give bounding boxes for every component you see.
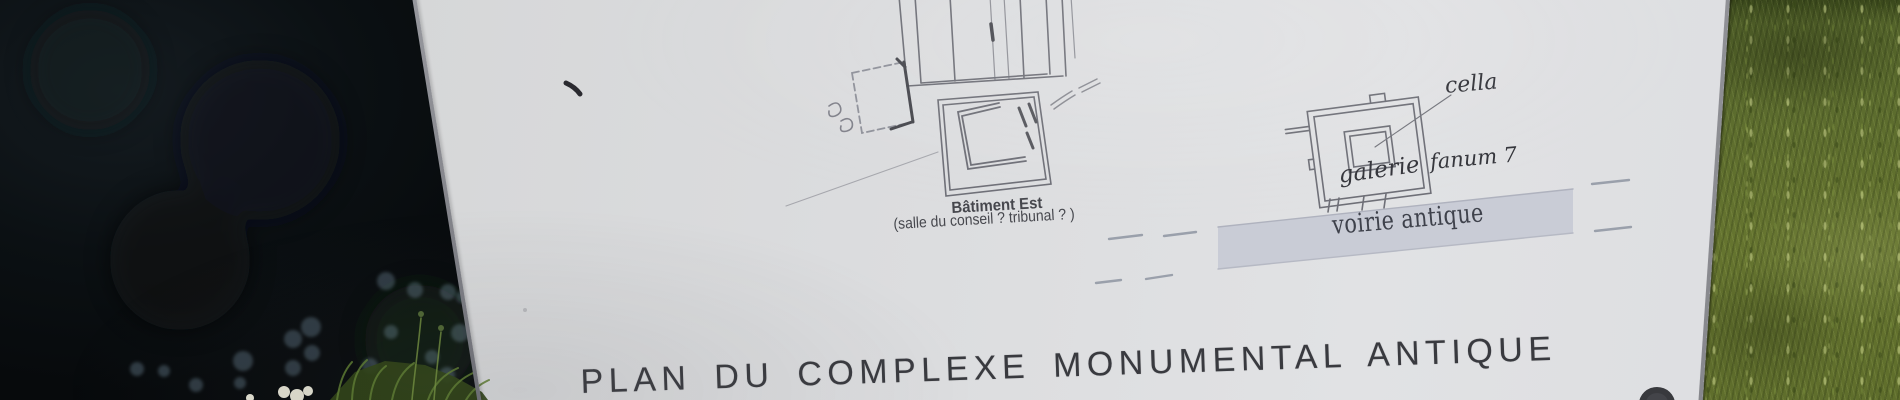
white-flowers bbox=[246, 386, 313, 400]
site-plan-drawing bbox=[0, 0, 1900, 400]
cella-label: cella bbox=[1444, 69, 1499, 98]
wall-stub-lines bbox=[1051, 79, 1100, 109]
batiment-est-lower-room-plan bbox=[938, 92, 1051, 196]
photo-scene: PLAN DU COMPLEXE MONUMENTAL ANTIQUE Bâti… bbox=[0, 0, 1900, 400]
fanum-plan bbox=[1282, 89, 1431, 211]
cella-leader-line bbox=[1375, 95, 1451, 147]
annex-plan bbox=[829, 59, 913, 133]
batiment-est-upper-hall-plan bbox=[899, 0, 1075, 86]
grass-seed-head bbox=[418, 311, 424, 317]
panel-speck bbox=[523, 308, 527, 312]
shadow-mottling bbox=[30, 10, 475, 395]
faint-alignment-line bbox=[786, 152, 938, 206]
bolt-head bbox=[1639, 387, 1675, 400]
insect-mark bbox=[566, 83, 580, 94]
grass-seed-head bbox=[438, 325, 444, 331]
